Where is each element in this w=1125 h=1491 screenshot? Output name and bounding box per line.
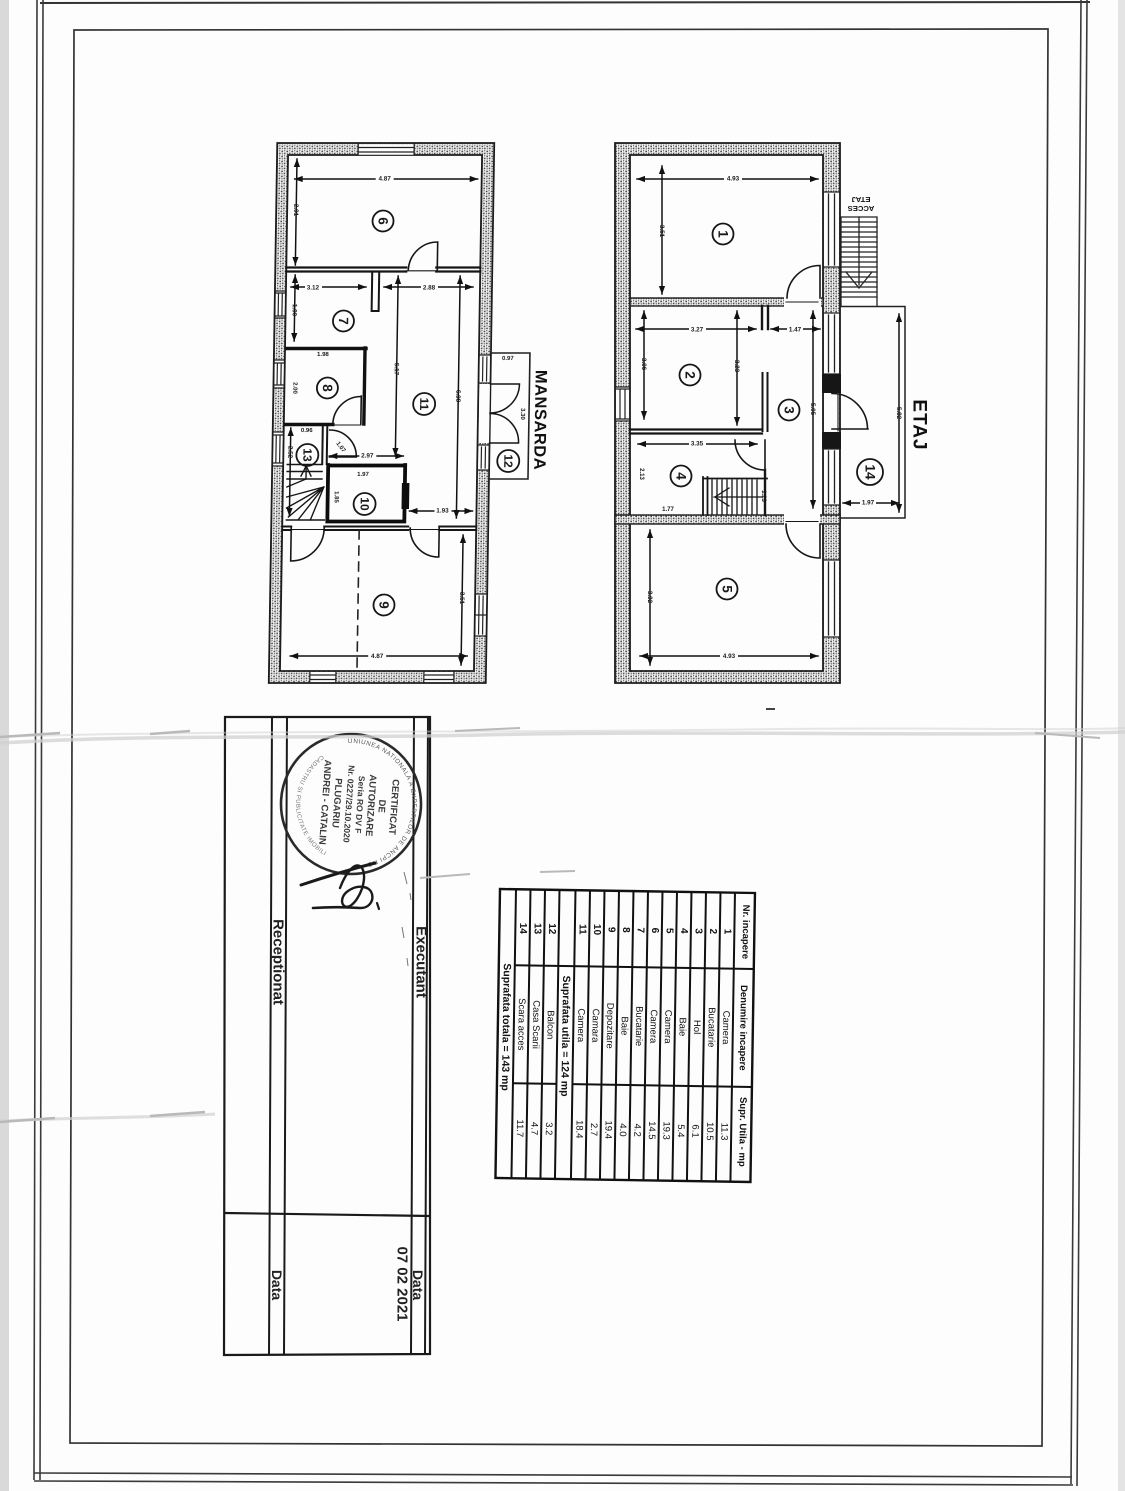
svg-text:4: 4 [674,472,689,480]
svg-text:3.51: 3.51 [658,225,665,238]
svg-text:6.1: 6.1 [689,1124,700,1137]
svg-text:3.92: 3.92 [646,591,653,604]
svg-text:9: 9 [606,927,617,933]
svg-text:13: 13 [531,923,542,935]
svg-text:Executant: Executant [413,926,430,998]
svg-text:9: 9 [376,601,391,609]
svg-text:1: 1 [722,929,733,935]
svg-text:8: 8 [320,384,335,392]
svg-text:1.98: 1.98 [317,352,329,358]
svg-text:5: 5 [720,585,735,593]
svg-text:1.90: 1.90 [291,304,298,317]
svg-text:1: 1 [716,230,731,238]
svg-text:3.27: 3.27 [691,327,704,334]
svg-text:4.93: 4.93 [723,653,736,660]
svg-text:14: 14 [863,464,878,480]
svg-text:5.4: 5.4 [675,1124,686,1137]
svg-text:07 02 2021: 07 02 2021 [394,1246,411,1321]
svg-text:3.23: 3.23 [733,360,740,373]
svg-text:0.96: 0.96 [301,428,313,434]
svg-text:3.51: 3.51 [458,592,465,605]
svg-text:7: 7 [336,317,351,325]
svg-text:3: 3 [782,406,797,414]
svg-text:Suprafata totala = 143 mp: Suprafata totala = 143 mp [499,963,513,1091]
svg-text:Receptionat: Receptionat [270,919,287,1005]
svg-text:2.91: 2.91 [292,204,299,217]
svg-text:10.5: 10.5 [704,1122,715,1141]
svg-text:2: 2 [707,928,718,934]
svg-text:2.97: 2.97 [361,453,374,460]
svg-text:Camara: Camara [589,1009,601,1044]
svg-text:3.30: 3.30 [519,408,525,420]
svg-text:2.13: 2.13 [638,468,644,480]
svg-text:3.35: 3.35 [691,441,704,448]
svg-text:11.7: 11.7 [514,1119,525,1137]
svg-text:11.3: 11.3 [718,1123,729,1141]
svg-text:11: 11 [576,924,587,935]
svg-text:4.87: 4.87 [371,653,384,660]
svg-text:1.23: 1.23 [760,490,766,502]
svg-text:Bucatarie: Bucatarie [705,1007,717,1047]
svg-text:4.7: 4.7 [528,1122,539,1135]
svg-text:2.00: 2.00 [291,382,297,394]
svg-text:1.97: 1.97 [862,500,875,507]
svg-text:Suprafata utila = 124 mp: Suprafata utila = 124 mp [558,975,572,1096]
svg-text:2.88: 2.88 [423,285,436,292]
svg-text:5.82: 5.82 [895,407,902,420]
svg-text:5.05: 5.05 [809,403,816,416]
svg-text:13: 13 [300,448,314,462]
svg-text:12: 12 [546,923,557,935]
svg-text:5: 5 [664,928,675,934]
svg-text:Camera: Camera [662,1010,674,1045]
svg-text:10: 10 [357,497,371,511]
svg-text:3.12: 3.12 [307,285,320,292]
svg-text:1.47: 1.47 [789,327,802,334]
svg-text:5.17: 5.17 [393,363,400,376]
svg-text:Depozitare: Depozitare [604,1003,616,1049]
svg-text:1.77: 1.77 [662,507,674,513]
svg-text:Scara acces: Scara acces [515,998,527,1051]
svg-text:4.87: 4.87 [379,176,392,183]
svg-text:2: 2 [683,371,698,379]
svg-text:Data: Data [269,1270,285,1301]
svg-text:ACCES: ACCES [848,204,875,213]
svg-text:10: 10 [591,924,602,936]
svg-text:ETAJ: ETAJ [852,195,871,204]
svg-text:DE: DE [375,799,387,813]
svg-text:12: 12 [501,454,515,468]
svg-text:3.06: 3.06 [640,358,647,371]
svg-text:1.85: 1.85 [333,491,339,503]
svg-text:14.5: 14.5 [646,1121,657,1140]
svg-text:6: 6 [375,217,390,225]
svg-text:19.3: 19.3 [660,1121,671,1140]
svg-text:11: 11 [417,398,431,411]
svg-text:1.97: 1.97 [357,472,369,478]
svg-text:Bucatarie: Bucatarie [633,1006,645,1046]
svg-text:Camera: Camera [575,1008,587,1043]
svg-text:Camera: Camera [647,1009,659,1044]
svg-text:2.52: 2.52 [286,446,293,459]
svg-text:Balcon: Balcon [544,1010,555,1039]
svg-text:6: 6 [649,928,660,934]
svg-text:14: 14 [517,923,528,935]
svg-text:ETAJ: ETAJ [909,399,930,450]
svg-text:4: 4 [678,928,689,934]
svg-text:Camera: Camera [720,1011,732,1046]
svg-text:Baie: Baie [618,1016,629,1035]
svg-text:Nr. incapere: Nr. incapere [739,905,751,960]
svg-text:Baie: Baie [676,1017,687,1036]
svg-text:19.4: 19.4 [602,1120,613,1139]
svg-text:1.93: 1.93 [436,508,449,515]
svg-text:4.2: 4.2 [631,1123,642,1136]
svg-text:2.7: 2.7 [588,1123,599,1136]
svg-text:Supr. Utila - mp: Supr. Utila - mp [736,1097,748,1167]
svg-text:Hol: Hol [691,1020,702,1034]
svg-text:3.2: 3.2 [543,1122,554,1135]
svg-text:4.0: 4.0 [617,1123,628,1136]
svg-text:Data: Data [410,1270,426,1301]
svg-text:MANSARDA: MANSARDA [530,370,550,470]
svg-text:3: 3 [693,928,704,934]
svg-text:6.98: 6.98 [454,390,461,403]
svg-text:4.93: 4.93 [727,176,740,183]
svg-text:Denumire incapere: Denumire incapere [737,985,749,1071]
svg-text:Casa Scarii: Casa Scarii [530,1000,542,1049]
svg-text:7: 7 [635,927,646,933]
svg-text:0.97: 0.97 [502,356,514,362]
svg-text:8: 8 [620,927,631,933]
svg-text:18.4: 18.4 [573,1120,584,1139]
